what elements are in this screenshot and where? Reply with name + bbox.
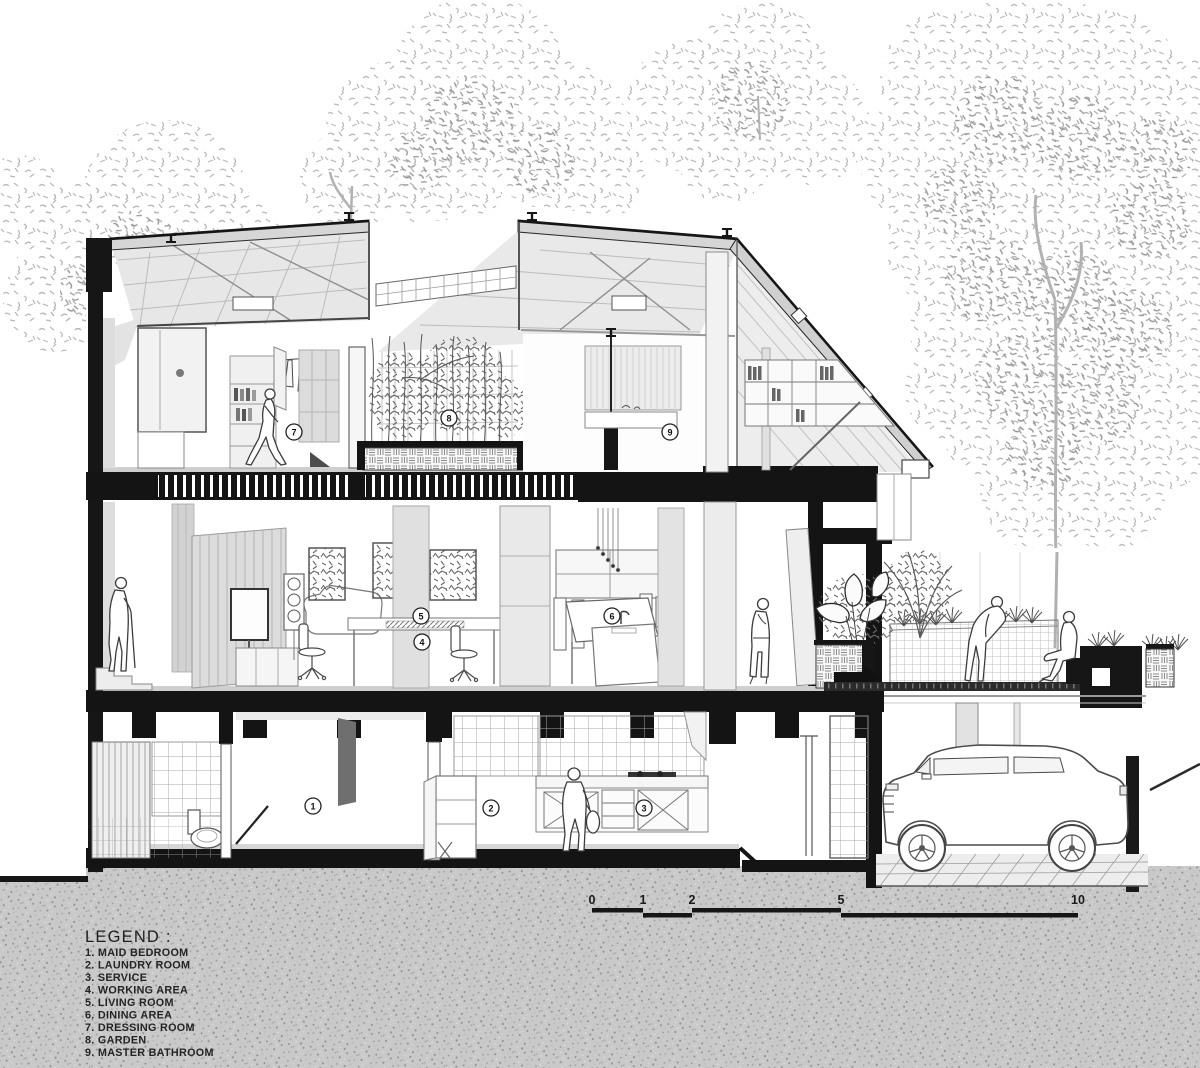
wheel	[1049, 825, 1095, 871]
terrace-deck	[824, 682, 1082, 691]
legend-item: 4. WORKING AREA	[85, 985, 188, 997]
room-marker-6: 6	[604, 608, 620, 624]
room-marker-5: 5	[413, 608, 429, 624]
marker-number: 7	[291, 428, 296, 438]
marker-number: 2	[488, 804, 493, 814]
legend-item: 2. LAUNDRY ROOM	[85, 960, 190, 972]
section-drawing-page: 1 2 3 4 5 6 7 8 9 0 1 2 5 10 LEGEND : 1.…	[0, 0, 1200, 1068]
marker-number: 8	[446, 414, 451, 424]
garden-planter	[357, 441, 525, 470]
room-marker-3: 3	[636, 800, 652, 816]
legend-item: 5. LIVING ROOM	[85, 997, 174, 1009]
scale-tick-1: 1	[640, 893, 647, 907]
legend-item: 6. DINING AREA	[85, 1010, 172, 1022]
marker-number: 9	[667, 428, 672, 438]
legend-item: 7. DRESSING ROOM	[85, 1022, 195, 1034]
marker-number: 5	[418, 612, 423, 622]
room-marker-7: 7	[286, 424, 302, 440]
legend-title: LEGEND :	[85, 928, 172, 946]
room-marker-9: 9	[662, 424, 678, 440]
marker-number: 6	[609, 612, 614, 622]
carport-screen	[830, 716, 868, 858]
room-marker-8: 8	[441, 410, 457, 426]
tv	[231, 589, 268, 640]
scale-tick-5: 5	[838, 893, 845, 907]
room-marker-1: 1	[305, 798, 321, 814]
legend-item: 8. GARDEN	[85, 1035, 147, 1047]
shopping-bag	[587, 811, 600, 833]
legend-item: 9. MASTER BATHROOM	[85, 1047, 214, 1059]
marker-number: 3	[641, 804, 646, 814]
room-marker-2: 2	[483, 800, 499, 816]
marker-number: 4	[419, 638, 424, 648]
legend-item: 1. MAID BEDROOM	[85, 947, 188, 959]
scale-tick-0: 0	[589, 893, 596, 907]
scale-tick-10: 10	[1071, 893, 1085, 907]
wheel	[899, 825, 945, 871]
room-marker-4: 4	[414, 634, 430, 650]
house-section-drawing: 1 2 3 4 5 6 7 8 9 0 1 2 5 10 LEGEND : 1.…	[0, 0, 1200, 1068]
legend-item: 3. SERVICE	[85, 972, 147, 984]
scale-tick-2: 2	[689, 893, 696, 907]
marker-number: 1	[310, 802, 315, 812]
